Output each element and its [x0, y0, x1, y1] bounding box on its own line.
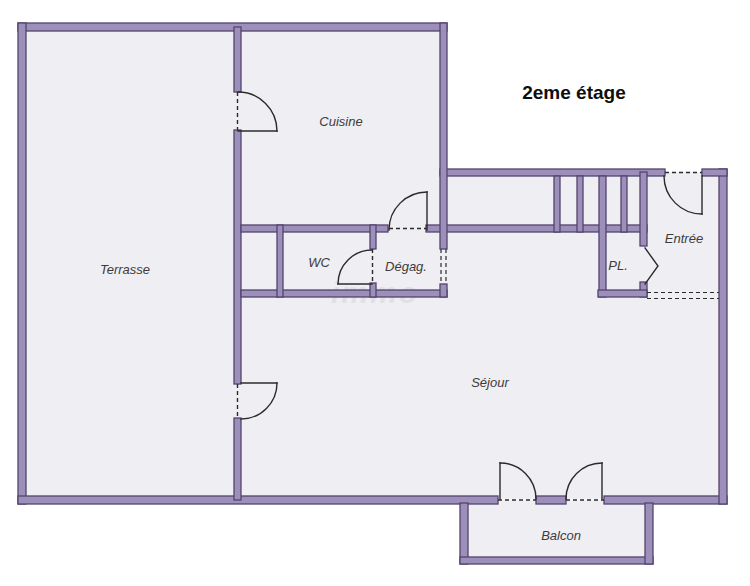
label-balcon: Balcon	[541, 528, 581, 543]
room-sejour	[241, 297, 719, 496]
wall-segment	[554, 176, 560, 232]
wall-segment	[241, 225, 388, 232]
wall-segment	[640, 172, 647, 246]
wall-segment	[719, 169, 727, 504]
wall-segment	[536, 496, 566, 504]
label-degagement: Dégag.	[385, 259, 427, 274]
label-cuisine: Cuisine	[319, 114, 362, 129]
label-entree: Entrée	[665, 231, 703, 246]
wall-segment	[645, 503, 653, 564]
floor-plan-canvas: immo	[0, 0, 750, 586]
wall-segment	[370, 225, 376, 249]
wall-segment	[241, 290, 447, 297]
wall-segment	[18, 23, 26, 504]
wall-segment	[440, 23, 447, 249]
wall-segment	[460, 557, 653, 564]
wall-segment	[577, 176, 583, 232]
wall-segment	[370, 283, 376, 297]
label-sejour: Séjour	[471, 375, 509, 390]
wall-segment	[460, 503, 468, 564]
wall-segment	[426, 225, 647, 232]
wall-segment	[18, 23, 447, 31]
wall-segment	[599, 176, 606, 297]
wall-segment	[18, 496, 498, 504]
wall-segment	[440, 284, 447, 297]
wall-segment	[234, 27, 241, 92]
wall-segment	[621, 176, 627, 232]
room-closet	[241, 232, 277, 290]
wall-segment	[604, 496, 727, 504]
floor-title: 2eme étage	[522, 82, 626, 103]
label-placard: PL.	[608, 258, 628, 273]
label-wc: WC	[308, 255, 330, 270]
label-terrasse: Terrasse	[100, 262, 150, 277]
wall-segment	[234, 418, 241, 500]
floor-plan: immo	[0, 0, 750, 586]
wall-segment	[440, 169, 665, 176]
wall-segment	[234, 130, 241, 384]
wall-segment	[277, 225, 283, 297]
wall-segment	[598, 290, 647, 297]
stair-area	[447, 176, 554, 225]
wall-segment	[702, 169, 727, 176]
